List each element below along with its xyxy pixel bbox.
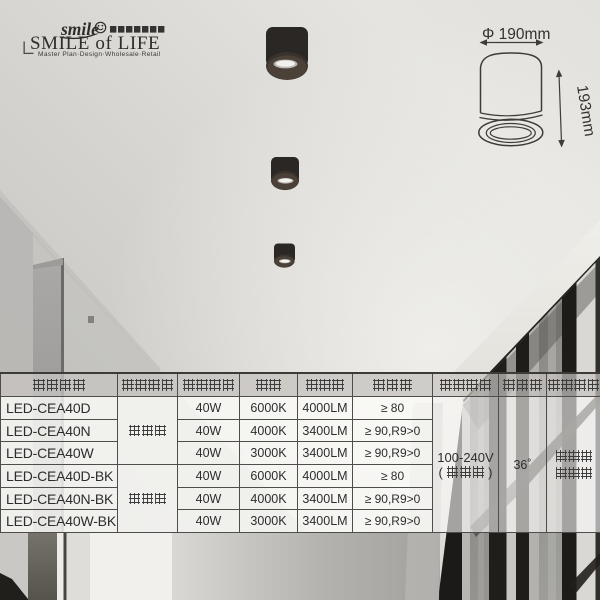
svg-text:Φ 190mm: Φ 190mm	[482, 26, 550, 43]
svg-text:Master Plan·Design·Wholesale·R: Master Plan·Design·Wholesale·Retail	[38, 51, 161, 58]
